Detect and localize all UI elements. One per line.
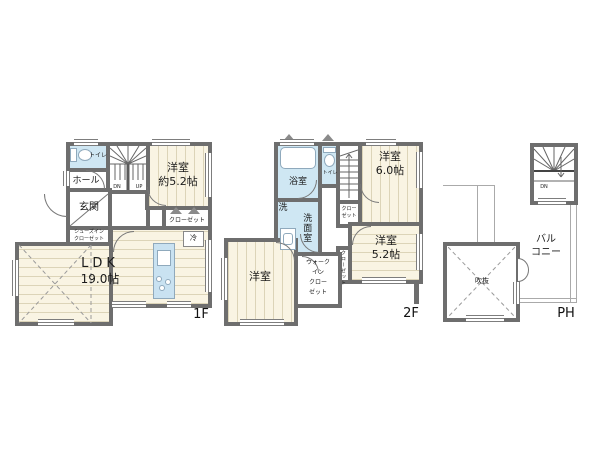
closet-b-label: クローゼット — [340, 250, 346, 282]
floor-label-1f: 1F — [190, 307, 212, 323]
window — [466, 315, 504, 322]
window — [12, 260, 19, 296]
window — [538, 198, 566, 205]
void-door-arc — [518, 258, 529, 282]
stove-burner-icon — [165, 279, 171, 285]
wic-label-l4: ゼット — [296, 289, 340, 296]
toilet-tank-icon-1f — [70, 148, 77, 162]
window — [240, 319, 284, 326]
roof-line — [494, 185, 495, 242]
stove-burner-icon — [159, 285, 165, 291]
balcony-rail-line — [570, 205, 571, 302]
fridge-label: 冷 — [183, 234, 204, 243]
window — [152, 139, 190, 146]
floorplan-canvas: 冷 トイレ ホール 玄関 洋室 約5.2帖 クローゼット シューズイン クローゼ… — [0, 0, 600, 450]
balcony-label-l2: コニー — [524, 247, 568, 260]
closet-a-label-l2: ゼット — [338, 213, 360, 219]
stairs-up-label: UP — [131, 184, 147, 190]
western52-name: 洋室 — [352, 234, 420, 248]
closet-a-label-l1: クロー — [338, 206, 360, 212]
western52-size: 5.2帖 — [352, 248, 420, 262]
stairs-ph-icon — [534, 147, 574, 205]
floor-label-2f: 2F — [398, 306, 424, 322]
western6-name: 洋室 — [360, 150, 420, 164]
closet-label-1f: クローゼット — [164, 217, 210, 224]
window — [513, 282, 520, 304]
western1-size: 約5.2帖 — [147, 175, 209, 189]
wall-stub — [414, 282, 419, 304]
washer-label: 洗 — [276, 203, 290, 214]
wic-label-l3: クロー — [296, 279, 340, 286]
toilet-label-2f: トイレ — [319, 170, 341, 176]
window — [221, 258, 228, 300]
entrance-label: 玄関 — [74, 202, 104, 215]
ldk-size: 19.0帖 — [60, 272, 140, 287]
stove-burner-icon — [156, 276, 162, 282]
balcony-label-l1: バル — [524, 234, 568, 247]
entrance-door-arc — [44, 194, 67, 217]
void-label: 吹抜 — [460, 277, 504, 286]
western1-name: 洋室 — [147, 161, 209, 175]
window — [112, 301, 146, 308]
balcony-rail-line — [576, 205, 577, 302]
western6-size: 6.0帖 — [360, 164, 420, 178]
window — [366, 139, 396, 146]
window — [205, 240, 212, 292]
toilet-bowl-icon-2f — [324, 154, 335, 167]
window — [362, 277, 406, 284]
shoes-closet-label-l2: クローゼット — [69, 236, 109, 242]
stairs-2f-icon — [340, 146, 358, 204]
wic-label-l2: イン — [296, 269, 340, 276]
window — [74, 139, 98, 146]
hall-label: ホール — [68, 176, 104, 187]
ldk-name: LDK — [60, 256, 140, 272]
window — [167, 301, 191, 308]
vent-icon — [322, 134, 334, 141]
floor-label-ph: PH — [552, 306, 580, 322]
washroom-label: 洗面室 — [300, 204, 311, 252]
stairs-ph-dn-label: DN — [536, 184, 552, 190]
window — [280, 139, 314, 146]
closet-door-icon — [170, 207, 182, 214]
roof-line — [443, 185, 494, 186]
balcony-rail-line — [520, 302, 577, 303]
wic-label-l1: ウォーク — [296, 259, 340, 266]
closet-door-icon — [188, 207, 200, 214]
toilet-label-1f: トイレ — [86, 152, 110, 159]
balcony-rail-line — [520, 298, 577, 299]
window — [38, 319, 74, 326]
roof-line — [477, 185, 478, 242]
bathtub-icon — [280, 147, 316, 169]
shoes-closet-label-l1: シューズイン — [69, 229, 109, 235]
kitchen-sink-icon — [157, 250, 171, 266]
stairs-dn-label: DN — [109, 184, 125, 190]
western-sw-label: 洋室 — [228, 270, 292, 284]
toilet-tank-icon-2f — [323, 147, 336, 153]
bath-label: 浴室 — [276, 177, 320, 188]
